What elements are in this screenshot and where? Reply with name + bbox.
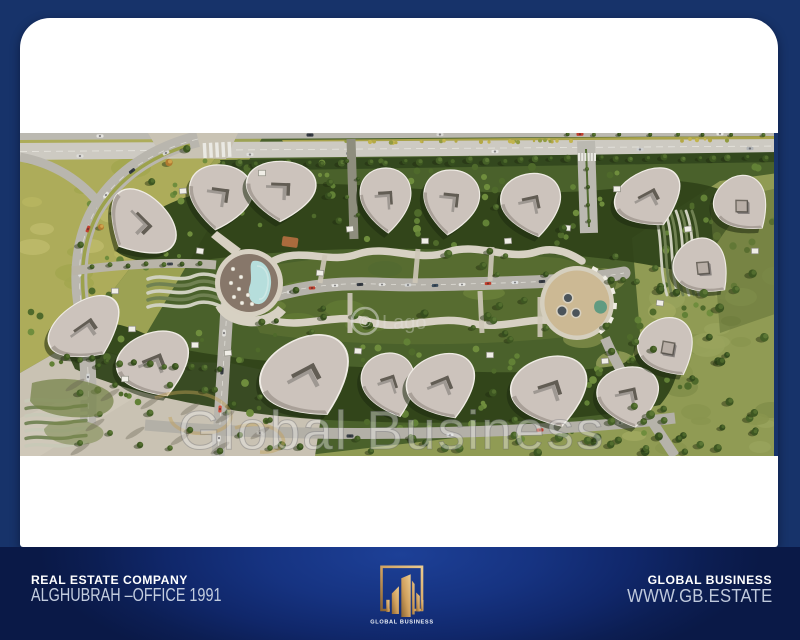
svg-text:GLOBAL BUSINESS: GLOBAL BUSINESS [370, 620, 433, 626]
